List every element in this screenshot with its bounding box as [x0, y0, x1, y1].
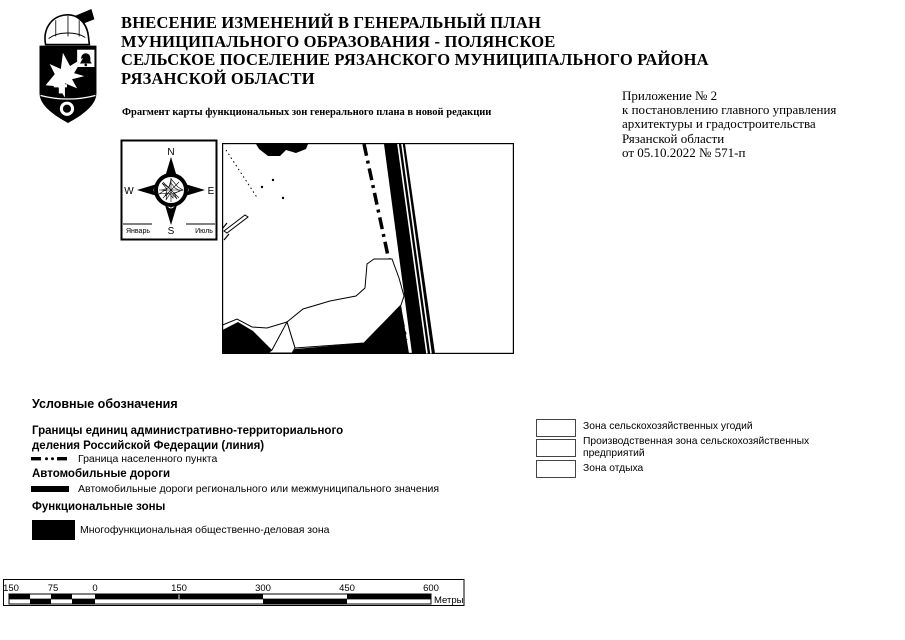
recreation-zone-swatch — [536, 460, 576, 478]
scale-label: 150 — [171, 583, 187, 594]
map-fragment — [222, 143, 514, 354]
legend-zones-label: Многофункциональная общественно-деловая … — [80, 524, 329, 536]
title-line: СЕЛЬСКОЕ ПОСЕЛЕНИЕ РЯЗАНСКОГО МУНИЦИПАЛЬ… — [121, 51, 821, 70]
legend-settlement-boundary-label: Граница населенного пункта — [78, 453, 217, 465]
multifunctional-zone-swatch — [32, 520, 75, 540]
agricultural-zone-label: Зона сельскохозяйственных угодий — [583, 421, 753, 433]
scale-label: 0 — [92, 583, 97, 594]
industrial-agro-zone-swatch — [536, 439, 576, 457]
title-line: ВНЕСЕНИЕ ИЗМЕНЕНИЙ В ГЕНЕРАЛЬНЫЙ ПЛАН — [121, 14, 821, 33]
legend-admin-boundaries-line2: деления Российской Федерации (линия) — [32, 439, 343, 454]
appendix-line: Рязанской области — [622, 132, 892, 146]
january-wind-label: Январь — [126, 228, 150, 235]
recreation-zone-label: Зона отдыха — [583, 463, 643, 475]
south-label: S — [168, 226, 175, 237]
regional-road-symbol — [31, 486, 69, 492]
legend-heading: Условные обозначения — [32, 397, 178, 411]
compass-rose: N S W E Январь Июль — [120, 139, 219, 242]
scale-units-label: Метры — [434, 595, 464, 606]
appendix-line: от 05.10.2022 № 571-п — [622, 146, 892, 160]
legend-admin-boundaries-line1: Границы единиц административно-территори… — [32, 424, 343, 439]
industrial-agro-zone-label: Производственная зона сельскохозяйственн… — [583, 436, 833, 459]
scale-label: 600 — [423, 583, 439, 594]
legend-roads-title: Автомобильные дороги — [32, 468, 170, 480]
appendix-note: Приложение № 2 к постановлению главного … — [622, 89, 892, 160]
scale-bar: 150 75 0 150 300 450 600 Метры — [3, 578, 466, 608]
scale-label: 300 — [255, 583, 271, 594]
title-line: РЯЗАНСКОЙ ОБЛАСТИ — [121, 70, 821, 89]
document-page: ВНЕСЕНИЕ ИЗМЕНЕНИЙ В ГЕНЕРАЛЬНЫЙ ПЛАН МУ… — [0, 0, 905, 640]
scale-label: 75 — [48, 583, 59, 594]
legend-roads-label: Автомобильные дороги регионального или м… — [78, 483, 439, 495]
legend-admin-boundaries-title: Границы единиц административно-территори… — [32, 424, 343, 454]
map-caption: Фрагмент карты функциональных зон генера… — [122, 107, 491, 118]
appendix-line: Приложение № 2 — [622, 89, 892, 103]
coat-of-arms-icon — [33, 8, 105, 126]
july-wind-label: Июль — [195, 228, 213, 235]
west-label: W — [124, 186, 134, 197]
page-title: ВНЕСЕНИЕ ИЗМЕНЕНИЙ В ГЕНЕРАЛЬНЫЙ ПЛАН МУ… — [121, 14, 821, 88]
title-line: МУНИЦИПАЛЬНОГО ОБРАЗОВАНИЯ - ПОЛЯНСКОЕ — [121, 33, 821, 52]
east-label: E — [208, 186, 215, 197]
settlement-boundary-symbol — [31, 455, 73, 463]
north-label: N — [167, 147, 174, 158]
scale-label: 150 — [3, 583, 19, 594]
scale-label: 450 — [339, 583, 355, 594]
appendix-line: к постановлению главного управления — [622, 103, 892, 117]
agricultural-zone-swatch — [536, 419, 576, 437]
legend-zones-title: Функциональные зоны — [32, 501, 165, 513]
appendix-line: архитектуры и градостроительства — [622, 117, 892, 131]
